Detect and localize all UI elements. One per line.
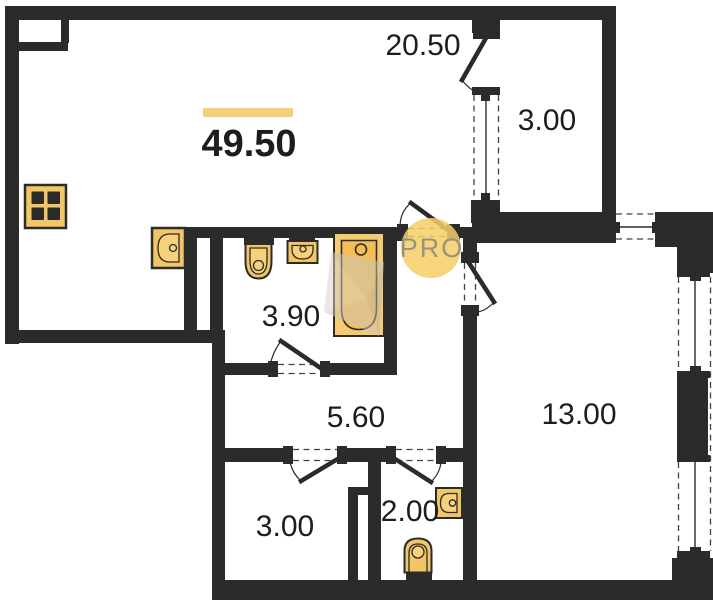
right-window-upper (679, 277, 696, 371)
toilet-icon (244, 234, 274, 279)
total-area-bar (203, 108, 293, 117)
hallway-area-label: 5.60 (327, 401, 385, 434)
small-room-area-label: 3.00 (256, 510, 314, 543)
top-window (616, 214, 655, 239)
bathroom-area-label: 3.90 (262, 300, 320, 333)
wc-washbasin-icon (436, 488, 462, 518)
room-door (465, 263, 495, 312)
balcony-window (474, 95, 499, 200)
floor-plan: PRO 49.50 20.50 3.00 3.90 5.60 13.00 3.0… (0, 0, 713, 600)
balcony-area-label: 3.00 (518, 104, 576, 137)
wc-door (392, 450, 441, 483)
washbasin-icon (288, 234, 318, 263)
pro-badge-label: PRO (400, 233, 465, 263)
wc-toilet-icon (405, 539, 433, 585)
small-room-door (290, 450, 341, 482)
kitchen-sink-icon (152, 228, 185, 268)
balcony-door (462, 38, 486, 92)
floor-plan-drawing: PRO 49.50 20.50 3.00 3.90 5.60 13.00 3.0… (0, 0, 713, 600)
living-kitchen-area-label: 20.50 (385, 29, 460, 62)
wc-area-label: 2.00 (381, 495, 439, 528)
room-area-label: 13.00 (541, 398, 616, 431)
total-area-label: 49.50 (201, 123, 296, 165)
stove-icon (25, 185, 66, 228)
right-window-lower (679, 462, 696, 551)
